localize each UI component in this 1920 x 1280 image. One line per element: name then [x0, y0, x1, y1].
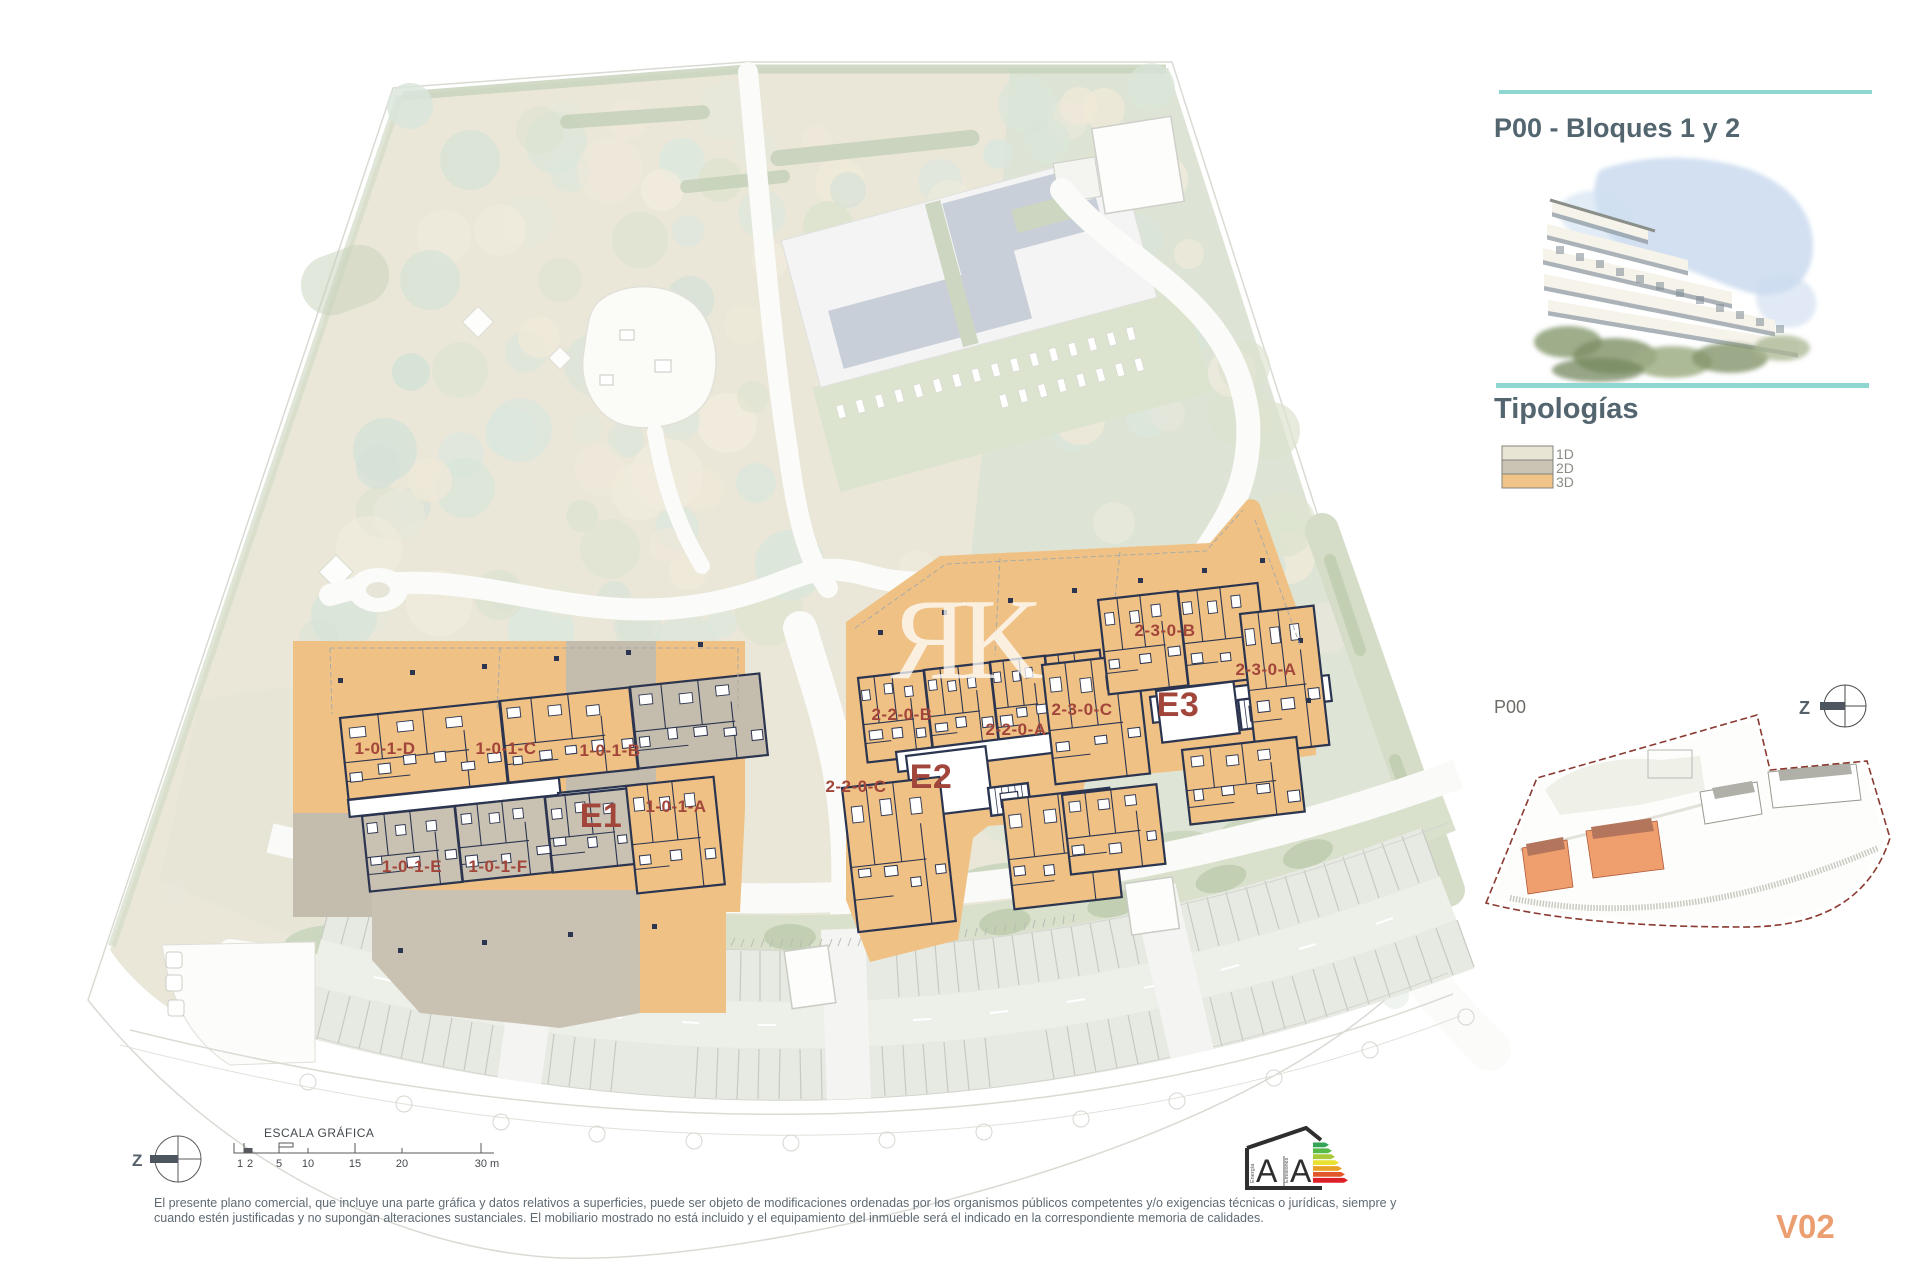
- svg-text:ESCALA GRÁFICA: ESCALA GRÁFICA: [264, 1125, 374, 1140]
- svg-text:3D: 3D: [1556, 474, 1574, 490]
- svg-text:1-0-1-A: 1-0-1-A: [645, 797, 706, 816]
- svg-text:A: A: [1256, 1153, 1278, 1189]
- svg-text:P00 - Bloques 1 y 2: P00 - Bloques 1 y 2: [1494, 113, 1740, 143]
- svg-text:2-3-0-B: 2-3-0-B: [1134, 621, 1195, 640]
- svg-text:Z: Z: [1799, 698, 1810, 718]
- svg-text:cuando estén justificadas y no: cuando estén justificadas y no supongan …: [154, 1211, 1264, 1225]
- svg-text:V02: V02: [1776, 1208, 1835, 1245]
- svg-text:Emisiones: Emisiones: [1284, 1157, 1290, 1183]
- svg-text:2-2-0-C: 2-2-0-C: [825, 777, 886, 796]
- svg-text:E3: E3: [1157, 686, 1200, 724]
- svg-text:Tipologías: Tipologías: [1494, 393, 1638, 425]
- svg-text:1-0-1-B: 1-0-1-B: [579, 741, 640, 760]
- svg-text:E1: E1: [580, 797, 623, 835]
- svg-text:1-0-1-F: 1-0-1-F: [468, 857, 527, 876]
- svg-text:5: 5: [276, 1158, 282, 1170]
- svg-text:1-0-1-D: 1-0-1-D: [354, 739, 415, 758]
- svg-text:2: 2: [247, 1158, 253, 1170]
- svg-text:P00: P00: [1494, 697, 1526, 717]
- svg-text:1-0-1-C: 1-0-1-C: [475, 739, 536, 758]
- svg-text:1-0-1-E: 1-0-1-E: [382, 857, 442, 876]
- svg-text:E2: E2: [910, 758, 953, 796]
- svg-text:15: 15: [349, 1158, 361, 1170]
- svg-text:30 m: 30 m: [475, 1158, 499, 1170]
- svg-text:A: A: [1290, 1153, 1312, 1189]
- svg-text:2-3-0-C: 2-3-0-C: [1051, 700, 1112, 719]
- svg-text:Z: Z: [132, 1151, 142, 1170]
- svg-text:10: 10: [302, 1158, 314, 1170]
- svg-text:2-3-0-A: 2-3-0-A: [1235, 660, 1296, 679]
- svg-text:El presente plano comercial, q: El presente plano comercial, que incluye…: [154, 1196, 1397, 1210]
- svg-text:2-2-0-B: 2-2-0-B: [871, 705, 932, 724]
- svg-text:2-2-0-A: 2-2-0-A: [985, 720, 1046, 739]
- svg-text:20: 20: [396, 1158, 408, 1170]
- svg-text:1: 1: [237, 1158, 243, 1170]
- svg-text:Energía: Energía: [1250, 1163, 1256, 1183]
- svg-text:ЯK: ЯK: [890, 576, 1042, 704]
